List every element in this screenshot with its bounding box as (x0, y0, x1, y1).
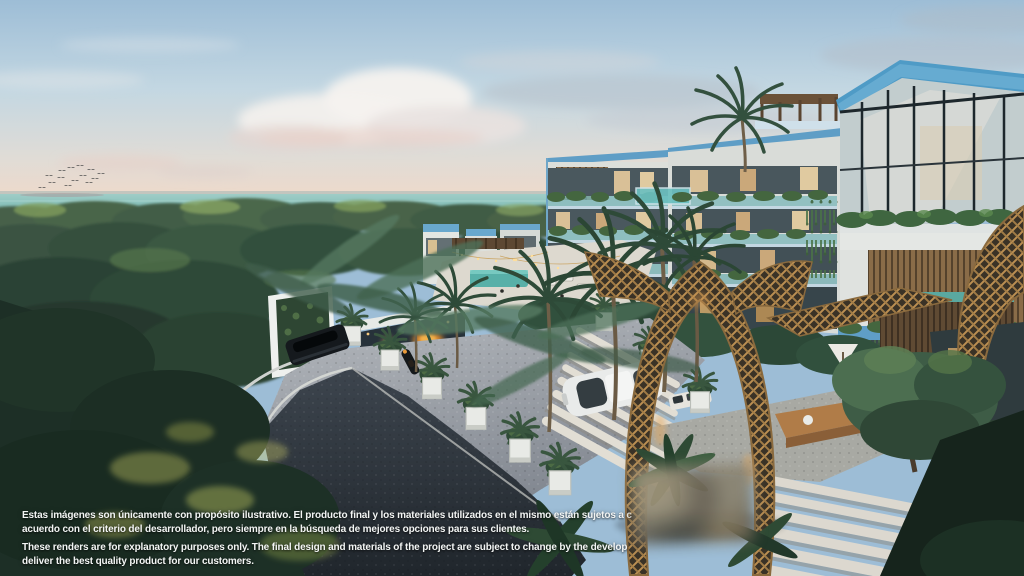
resort-render-image: Estas imágenes son únicamente con propós… (0, 0, 1024, 576)
distant-island (20, 193, 104, 197)
person-speck (500, 289, 504, 293)
disclaimer-es-line2: acuerdo con el criterio del desarrollado… (22, 523, 662, 537)
disclaimer-en-line2: deliver the best quality product for our… (22, 555, 662, 569)
person-speck (516, 284, 520, 288)
chair (803, 415, 813, 425)
disclaimer-en-line1: These renders are for explanatory purpos… (22, 541, 662, 555)
disclaimer-es-line1: Estas imágenes son únicamente con propós… (22, 509, 662, 523)
render-scene (0, 0, 1024, 576)
blurred-watermark (632, 464, 755, 545)
disclaimer-text: Estas imágenes son únicamente con propós… (22, 509, 662, 568)
